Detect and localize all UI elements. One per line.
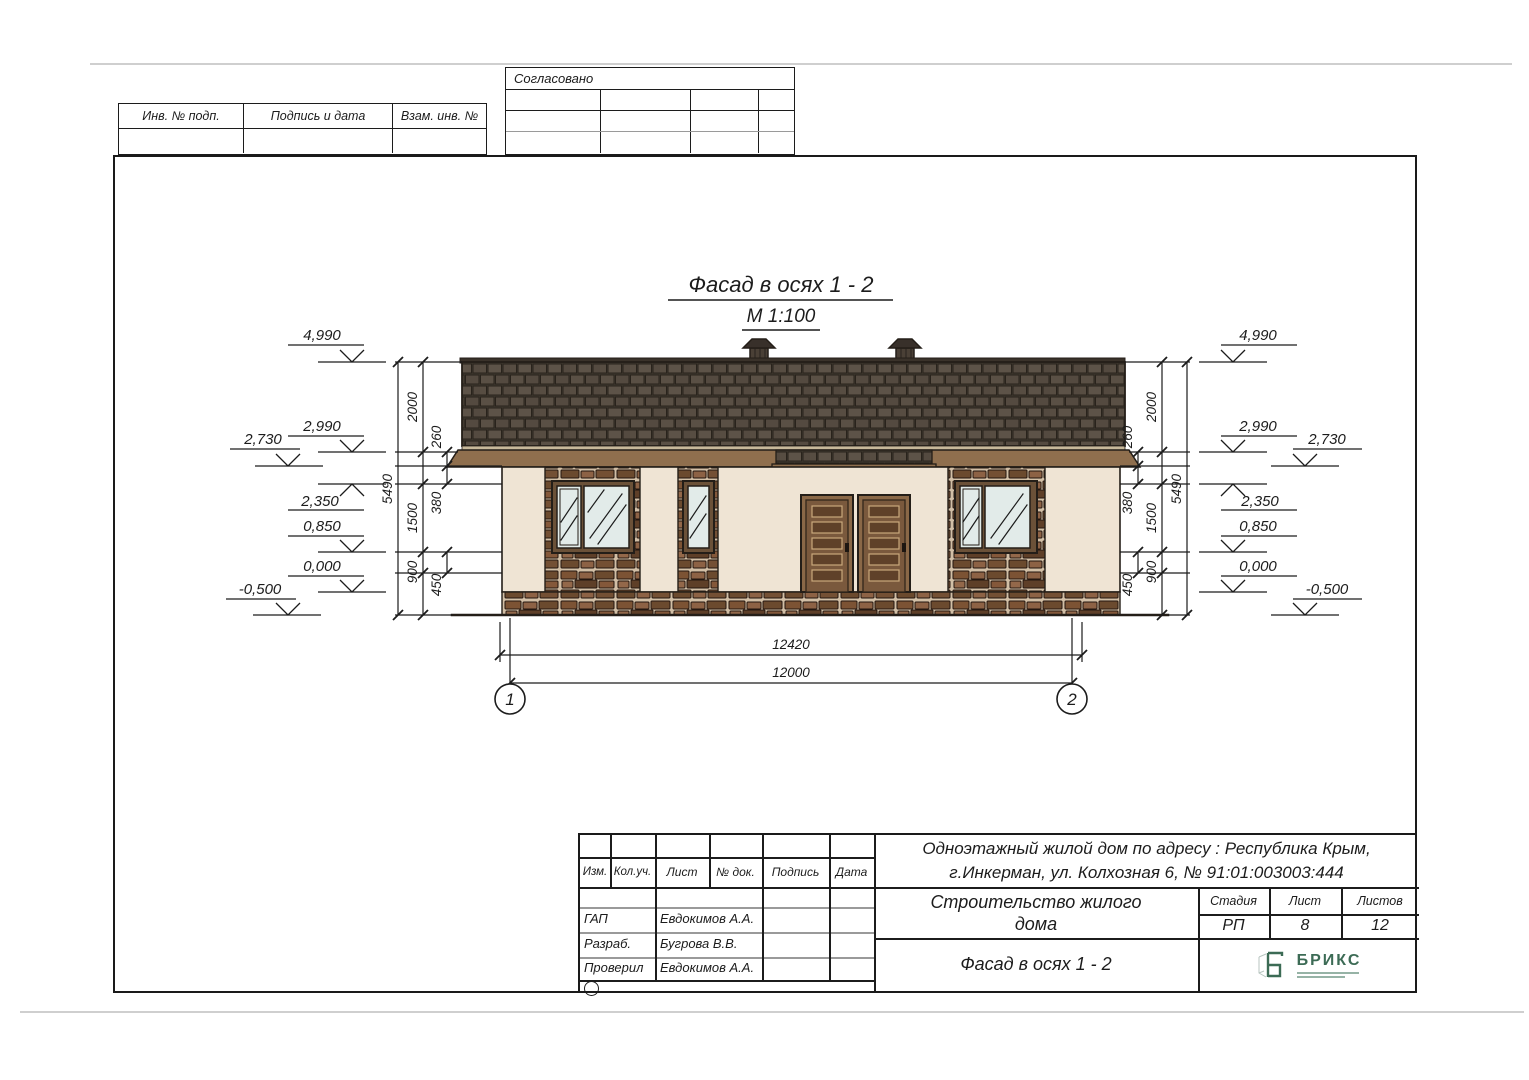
title-block: Изм. Кол.уч. Лист № док. Подпись Дата ГА…: [578, 833, 1417, 993]
dim-label-2000: 2000: [405, 391, 420, 423]
dim-label-1500: 1500: [405, 502, 420, 533]
tb-stage-value: РП: [1198, 914, 1269, 938]
door-left: [801, 495, 853, 592]
elev-label: 0,850: [303, 518, 341, 535]
window-left: [552, 481, 634, 553]
elevation-labels-right: 4,990 2,990 2,730 2,350 0,850 0,000 -0,5…: [1238, 327, 1349, 598]
tb-col-list: Лист: [655, 857, 709, 887]
dim-label-900: 900: [405, 560, 420, 583]
dim-label-260: 260: [1120, 425, 1135, 449]
drawing-scale: М 1:100: [747, 306, 816, 327]
logo-subtext-line: [1297, 976, 1345, 978]
tb-line: [580, 980, 874, 982]
dim-label-260: 260: [429, 425, 444, 449]
dim-label-2000: 2000: [1144, 391, 1159, 423]
drawing-sheet: Инв. № подп. Подпись и дата Взам. инв. №…: [0, 0, 1529, 1080]
dim-label-450: 450: [429, 573, 444, 596]
dim-label-380: 380: [429, 491, 444, 514]
dim-label-450: 450: [1120, 573, 1135, 596]
elevation-marks-right: [1199, 345, 1362, 615]
briks-logo-icon: [1256, 949, 1290, 981]
tb-col-izm: Изм.: [580, 857, 610, 887]
tb-address-line1: Одноэтажный жилой дом по адресу : Респуб…: [922, 839, 1370, 858]
elev-label: 2,730: [243, 431, 282, 448]
roof-center-strip: [776, 450, 932, 464]
tb-role-proveril: Проверил: [584, 960, 643, 975]
facade-house: [447, 339, 1168, 615]
tb-logo-cell: БРИКС: [1198, 938, 1419, 991]
elev-label: 0,000: [1239, 558, 1277, 575]
drawing-title-group: Фасад в осях 1 - 2 М 1:100: [668, 272, 893, 330]
tb-name-gap: Евдокимов А.А.: [660, 911, 754, 926]
tb-sheets-label: Листов: [1341, 887, 1419, 914]
dim-label-1500: 1500: [1144, 502, 1159, 533]
tb-col-podpis: Подпись: [762, 857, 829, 887]
dim-label-5490: 5490: [1169, 473, 1184, 504]
elev-label: 4,990: [303, 327, 341, 344]
tb-sheet-value: 8: [1269, 914, 1341, 938]
tb-role-razrab: Разраб.: [584, 936, 631, 951]
door-right: [858, 495, 910, 592]
tb-col-ndok: № док.: [709, 857, 762, 887]
dim-label-380: 380: [1120, 491, 1135, 514]
elevation-labels-left: 4,990 2,990 2,730 2,350 0,850 0,000 -0,5…: [239, 327, 342, 598]
stone-base-strip: [502, 592, 1120, 615]
tb-address-line2: г.Инкерман, ул. Колхозная 6, № 91:01:003…: [949, 863, 1344, 882]
tb-project-address: Одноэтажный жилой дом по адресу : Респуб…: [874, 836, 1419, 886]
tb-sheet-label: Лист: [1269, 887, 1341, 914]
elev-label: 0,000: [303, 558, 341, 575]
elev-label: -0,500: [239, 581, 282, 598]
briks-logo-textblock: БРИКС: [1297, 952, 1362, 978]
drawing-title: Фасад в осях 1 - 2: [689, 272, 874, 297]
elev-label: -0,500: [1306, 581, 1349, 598]
dim-label-900: 900: [1144, 560, 1159, 583]
tb-name-razrab: Бугрова В.В.: [660, 936, 737, 951]
tb-sheet-title: Фасад в осях 1 - 2: [874, 938, 1198, 991]
briks-logo: БРИКС: [1198, 938, 1419, 991]
axis-label-1: 1: [505, 690, 514, 709]
elev-label: 2,350: [300, 493, 339, 510]
elev-label: 2,990: [302, 418, 341, 435]
elev-label: 0,850: [1239, 518, 1277, 535]
tb-name-proveril: Евдокимов А.А.: [660, 960, 754, 975]
tb-sheets-value: 12: [1341, 914, 1419, 938]
door-handle: [845, 543, 849, 552]
axis-markers: 1 2: [495, 684, 1087, 714]
door-handle: [902, 543, 906, 552]
tb-object-name: Строительство жилого дома: [874, 889, 1198, 936]
horizontal-dimension-labels: 12420 12000: [772, 637, 810, 680]
tb-col-koluch: Кол.уч.: [610, 857, 655, 887]
tb-stage-label: Стадия: [1198, 887, 1269, 914]
logo-subtext-line: [1297, 972, 1359, 974]
tb-col-data: Дата: [829, 857, 874, 887]
tb-stamp-circle: [584, 981, 599, 996]
dim-label-5490: 5490: [380, 473, 395, 504]
elev-label: 2,990: [1238, 418, 1277, 435]
tb-object-line1: Строительство жилого: [930, 892, 1141, 912]
tb-object-line2: дома: [1015, 914, 1057, 934]
axis-label-2: 2: [1066, 690, 1077, 709]
elev-label: 2,350: [1240, 493, 1279, 510]
dim-label-12000: 12000: [772, 665, 810, 680]
briks-logo-name: БРИКС: [1297, 952, 1362, 970]
roof-shingles: [462, 362, 1125, 446]
window-middle: [683, 481, 714, 553]
window-right: [955, 481, 1037, 553]
tb-role-gap: ГАП: [584, 911, 608, 926]
elev-label: 2,730: [1307, 431, 1346, 448]
elev-label: 4,990: [1239, 327, 1277, 344]
dim-label-12420: 12420: [772, 637, 810, 652]
